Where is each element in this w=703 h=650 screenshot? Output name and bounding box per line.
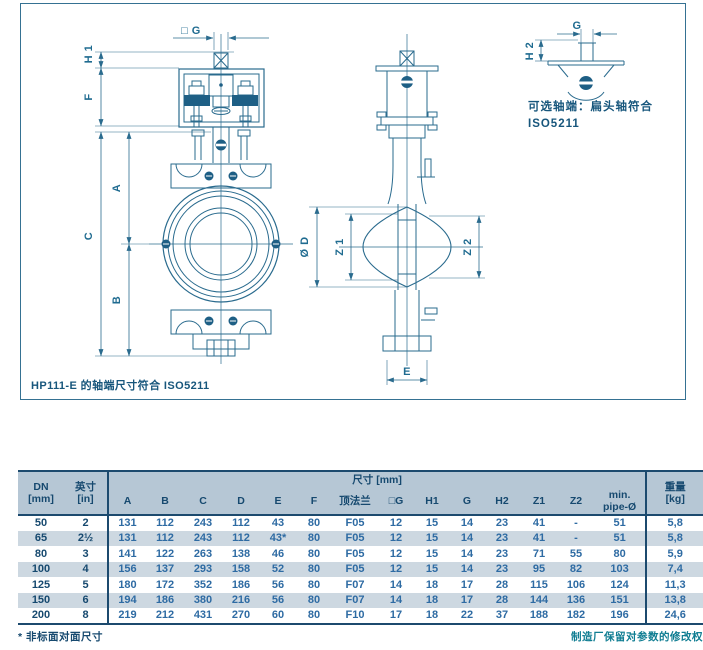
col-header-inch: 英寸 [in] [64,471,108,515]
table-row: 8031411222631384680F05121514237155805,9 [18,546,703,562]
cell: 141 [108,546,146,562]
cell: 2½ [64,531,108,547]
cell: 28 [484,577,520,593]
cell: 71 [520,546,558,562]
side-view [309,34,485,385]
table-row: 5021311122431124380F051215142341-515,8 [18,515,703,531]
table-header-row-2: A B C D E F 顶法兰 □G H1 G H2 Z1 Z2 min. pi… [18,488,703,515]
cell: F07 [332,577,378,593]
cell: 56 [260,577,296,593]
cell: 41 [520,515,558,531]
cell: 80 [296,531,332,547]
cell: 14 [378,577,414,593]
cell: 15 [414,562,450,578]
col-header-min-pipe-line2: pipe-Ø [594,501,645,513]
table-header-row-1: DN [mm] 英寸 [in] 尺寸 [mm] 重量 [kg] [18,471,703,488]
cell: 15 [414,546,450,562]
inset-note-line2: ISO5211 [528,118,580,130]
cell: 112 [146,531,184,547]
col-header-g: G [450,488,484,515]
cell: 23 [484,531,520,547]
cell: 293 [184,562,222,578]
cell: 51 [594,531,646,547]
col-header-c: C [184,488,222,515]
cell: 18 [414,593,450,609]
col-header-min-pipe: min. pipe-Ø [594,488,646,515]
col-header-inch-line2: [in] [64,493,107,505]
cell: 41 [520,531,558,547]
cell: 7,4 [646,562,703,578]
actuator-box [179,69,264,127]
footnotes: * 非标面对面尺寸 制造厂保留对参数的修改权 [18,629,703,644]
col-header-h2: H2 [484,488,520,515]
cell: 12 [378,562,414,578]
cell: 80 [296,577,332,593]
cell: 219 [108,608,146,624]
cell: 186 [222,577,260,593]
col-header-dn: DN [mm] [18,471,64,515]
col-header-min-pipe-line1: min. [594,489,645,501]
cell: 24,6 [646,608,703,624]
cell: 380 [184,593,222,609]
col-header-a: A [108,488,146,515]
cell: 131 [108,531,146,547]
cell: 270 [222,608,260,624]
cell: 80 [296,608,332,624]
col-header-weight-line1: 重量 [647,481,703,493]
cell: 15 [414,515,450,531]
cell: 103 [594,562,646,578]
cell: 17 [378,608,414,624]
cell: 5 [64,577,108,593]
cell: 5,8 [646,515,703,531]
cell: 23 [484,515,520,531]
cell: 150 [18,593,64,609]
cell: 43 [260,515,296,531]
cell: 243 [184,515,222,531]
cell: 13,8 [646,593,703,609]
col-header-z1: Z1 [520,488,558,515]
cell: 8 [64,608,108,624]
cell: 122 [146,546,184,562]
dim-label-a: A [111,184,123,192]
cell: 151 [594,593,646,609]
valve-drawing-svg: H 1 F C A B □ G [21,4,685,399]
dimension-table-section: DN [mm] 英寸 [in] 尺寸 [mm] 重量 [kg] A B [18,470,703,625]
cell: 4 [64,562,108,578]
cell: 43* [260,531,296,547]
cell: 52 [260,562,296,578]
cell: 194 [108,593,146,609]
cell: 243 [184,531,222,547]
cell: F10 [332,608,378,624]
dim-label-g: G [572,20,581,32]
cell: 115 [520,577,558,593]
cell: 82 [558,562,594,578]
cell: - [558,515,594,531]
table-row: 20082192124312706080F1017182237188182196… [18,608,703,624]
valve-datasheet-page: H 1 F C A B □ G [0,0,703,650]
cell: 18 [414,608,450,624]
cell: 212 [146,608,184,624]
col-header-d: D [222,488,260,515]
cell: 18 [414,577,450,593]
cell: F05 [332,515,378,531]
cell: 136 [558,593,594,609]
cell: 172 [146,577,184,593]
cell: 17 [450,593,484,609]
cell: 125 [18,577,64,593]
footnote-left: * 非标面对面尺寸 [18,629,103,644]
table-row: 15061941863802165680F0714181728144136151… [18,593,703,609]
dim-label-f: F [83,93,95,100]
cell: 14 [450,515,484,531]
cell: 14 [450,531,484,547]
shaft-end-inset [535,29,624,100]
cell: 51 [594,515,646,531]
cell: F05 [332,562,378,578]
front-view [95,32,293,364]
dim-label-z2: Z 2 [462,238,474,255]
cell: 156 [108,562,146,578]
cell: 80 [594,546,646,562]
cell: 216 [222,593,260,609]
cell: - [558,531,594,547]
cell: 182 [558,608,594,624]
cell: 112 [222,515,260,531]
table-body: 5021311122431124380F051215142341-515,865… [18,515,703,624]
cell: 80 [18,546,64,562]
dimension-table: DN [mm] 英寸 [in] 尺寸 [mm] 重量 [kg] A B [18,470,703,625]
cell: 180 [108,577,146,593]
col-header-weight-line2: [kg] [647,493,703,505]
col-header-h1: H1 [414,488,450,515]
cell: 65 [18,531,64,547]
col-header-dims-banner: 尺寸 [mm] [108,471,646,488]
dim-label-dia-d: Ø D [299,236,311,257]
cell: 56 [260,593,296,609]
cell: 22 [450,608,484,624]
cell: 138 [222,546,260,562]
cell: 12 [378,531,414,547]
cell: 431 [184,608,222,624]
cell: 3 [64,546,108,562]
side-extension-lines [309,207,485,385]
inset-dimension-lines [541,34,617,61]
cell: 112 [222,531,260,547]
cell: 12 [378,515,414,531]
col-header-f: F [296,488,332,515]
cell: 196 [594,608,646,624]
cell: F07 [332,593,378,609]
cell: 124 [594,577,646,593]
cell: 188 [520,608,558,624]
cell: 131 [108,515,146,531]
cell: 23 [484,562,520,578]
cell: 15 [414,531,450,547]
dim-label-c: C [83,232,95,240]
cell: 60 [260,608,296,624]
dim-label-z1: Z 1 [334,238,346,255]
col-header-b: B [146,488,184,515]
cell: 200 [18,608,64,624]
col-header-dn-line1: DN [18,481,64,493]
dim-label-b: B [111,296,123,304]
cell: 186 [146,593,184,609]
cell: 158 [222,562,260,578]
col-header-gsquare: □G [378,488,414,515]
cell: 5,8 [646,531,703,547]
cell: 352 [184,577,222,593]
col-header-inch-line1: 英寸 [64,481,107,493]
cell: 106 [558,577,594,593]
col-header-weight: 重量 [kg] [646,471,703,515]
cell: 50 [18,515,64,531]
cell: 137 [146,562,184,578]
cell: 263 [184,546,222,562]
cell: 2 [64,515,108,531]
cell: 80 [296,515,332,531]
cell: 12 [378,546,414,562]
col-header-dn-line2: [mm] [18,493,64,505]
col-header-topflange: 顶法兰 [332,488,378,515]
cell: 14 [450,546,484,562]
col-header-e: E [260,488,296,515]
cell: 55 [558,546,594,562]
col-header-z2: Z2 [558,488,594,515]
cell: F05 [332,531,378,547]
cell: F05 [332,546,378,562]
cell: 6 [64,593,108,609]
technical-drawing-frame: H 1 F C A B □ G [20,3,686,400]
cell: 80 [296,593,332,609]
cell: 95 [520,562,558,578]
cell: 11,3 [646,577,703,593]
inset-note-line1: 可选轴端：扁头轴符合 [528,99,653,113]
cell: 37 [484,608,520,624]
footnote-right: 制造厂保留对参数的修改权 [571,629,703,644]
cell: 14 [378,593,414,609]
cell: 144 [520,593,558,609]
table-row: 652½13111224311243*80F051215142341-515,8 [18,531,703,547]
cell: 23 [484,546,520,562]
dim-label-e: E [403,366,411,378]
dim-label-h2: H 2 [524,42,536,61]
front-extension-lines [95,32,234,356]
cell: 80 [296,562,332,578]
table-row: 12551801723521865680F0714181728115106124… [18,577,703,593]
cell: 100 [18,562,64,578]
cell: 14 [450,562,484,578]
cell: 17 [450,577,484,593]
cell: 112 [146,515,184,531]
cell: 80 [296,546,332,562]
drawing-caption: HP111-E 的轴端尺寸符合 ISO5211 [31,378,210,392]
cell: 28 [484,593,520,609]
dim-label-h1: H 1 [83,45,95,64]
table-row: 10041561372931585280F051215142395821037,… [18,562,703,578]
dim-label-g-square: □ G [181,25,201,37]
cell: 46 [260,546,296,562]
cell: 5,9 [646,546,703,562]
